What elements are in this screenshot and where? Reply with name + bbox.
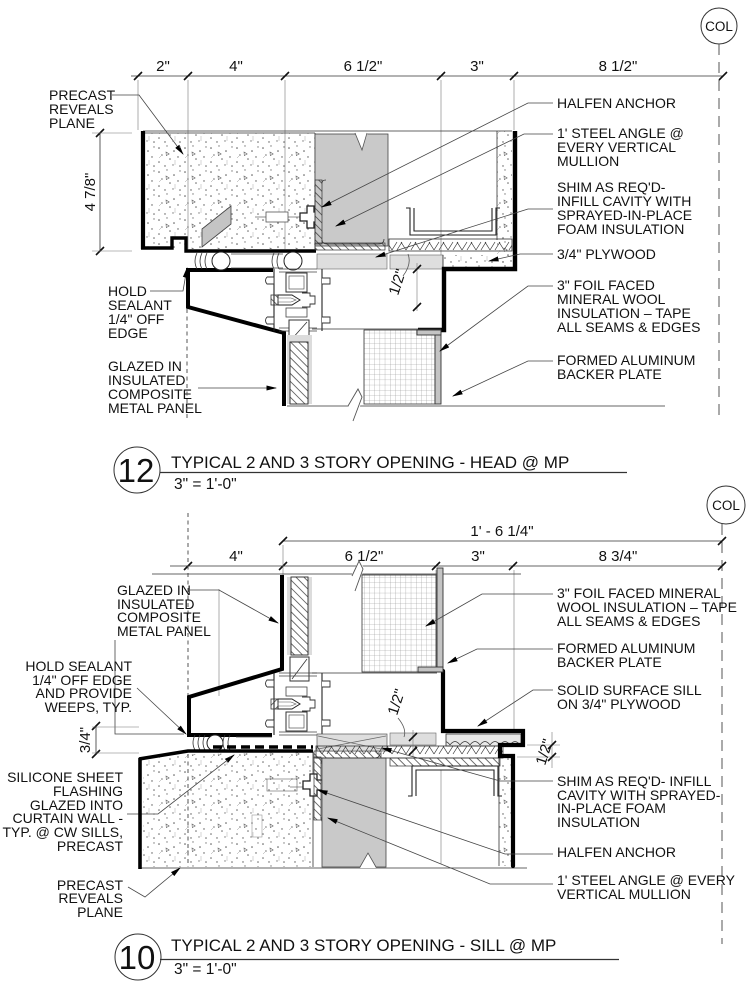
svg-text:HALFEN ANCHOR: HALFEN ANCHOR	[557, 95, 676, 111]
svg-text:4": 4"	[229, 548, 243, 565]
svg-text:MULLION: MULLION	[557, 153, 619, 169]
svg-text:BACKER PLATE: BACKER PLATE	[557, 654, 662, 670]
svg-text:8 3/4": 8 3/4"	[599, 548, 638, 565]
svg-text:BACKER PLATE: BACKER PLATE	[557, 366, 662, 382]
svg-text:12: 12	[118, 452, 155, 489]
svg-text:6 1/2": 6 1/2"	[345, 548, 384, 565]
svg-text:TYPICAL 2 AND 3 STORY OPENING: TYPICAL 2 AND 3 STORY OPENING - HEAD @ M…	[171, 453, 569, 472]
svg-text:PRECAST: PRECAST	[57, 838, 124, 854]
svg-text:3": 3"	[470, 58, 484, 75]
svg-text:3/4" PLYWOOD: 3/4" PLYWOOD	[557, 246, 656, 262]
svg-text:VERTICAL MULLION: VERTICAL MULLION	[557, 886, 691, 902]
svg-text:WEEPS, TYP.: WEEPS, TYP.	[45, 699, 132, 715]
svg-text:3" = 1'-0": 3" = 1'-0"	[174, 476, 237, 493]
svg-text:ALL SEAMS & EDGES: ALL SEAMS & EDGES	[557, 319, 700, 335]
svg-text:EDGE: EDGE	[108, 325, 148, 341]
svg-text:3/4": 3/4"	[77, 727, 94, 753]
svg-text:METAL PANEL: METAL PANEL	[108, 400, 202, 416]
svg-text:FOAM INSULATION: FOAM INSULATION	[557, 221, 684, 237]
svg-text:ALL SEAMS & EDGES: ALL SEAMS & EDGES	[557, 613, 700, 629]
svg-text:PLANE: PLANE	[49, 115, 95, 131]
svg-text:INSULATION: INSULATION	[557, 814, 640, 830]
svg-text:3" = 1'-0": 3" = 1'-0"	[174, 961, 237, 978]
svg-text:COL: COL	[705, 19, 733, 34]
svg-text:PLANE: PLANE	[77, 904, 123, 920]
svg-text:COL: COL	[712, 498, 740, 513]
svg-text:3": 3"	[471, 548, 485, 565]
svg-text:8 1/2": 8 1/2"	[599, 58, 638, 75]
svg-text:10: 10	[119, 939, 156, 976]
svg-text:ON 3/4" PLYWOOD: ON 3/4" PLYWOOD	[557, 696, 681, 712]
svg-text:2": 2"	[156, 58, 170, 75]
svg-text:METAL PANEL: METAL PANEL	[117, 623, 211, 639]
svg-text:TYPICAL 2 AND 3 STORY OPENING: TYPICAL 2 AND 3 STORY OPENING - SILL @ M…	[171, 936, 556, 955]
svg-text:6 1/2": 6 1/2"	[344, 58, 383, 75]
svg-text:HALFEN ANCHOR: HALFEN ANCHOR	[557, 844, 676, 860]
svg-text:4 7/8": 4 7/8"	[82, 173, 99, 212]
svg-text:4": 4"	[229, 58, 243, 75]
svg-text:1' - 6 1/4": 1' - 6 1/4"	[470, 523, 533, 540]
